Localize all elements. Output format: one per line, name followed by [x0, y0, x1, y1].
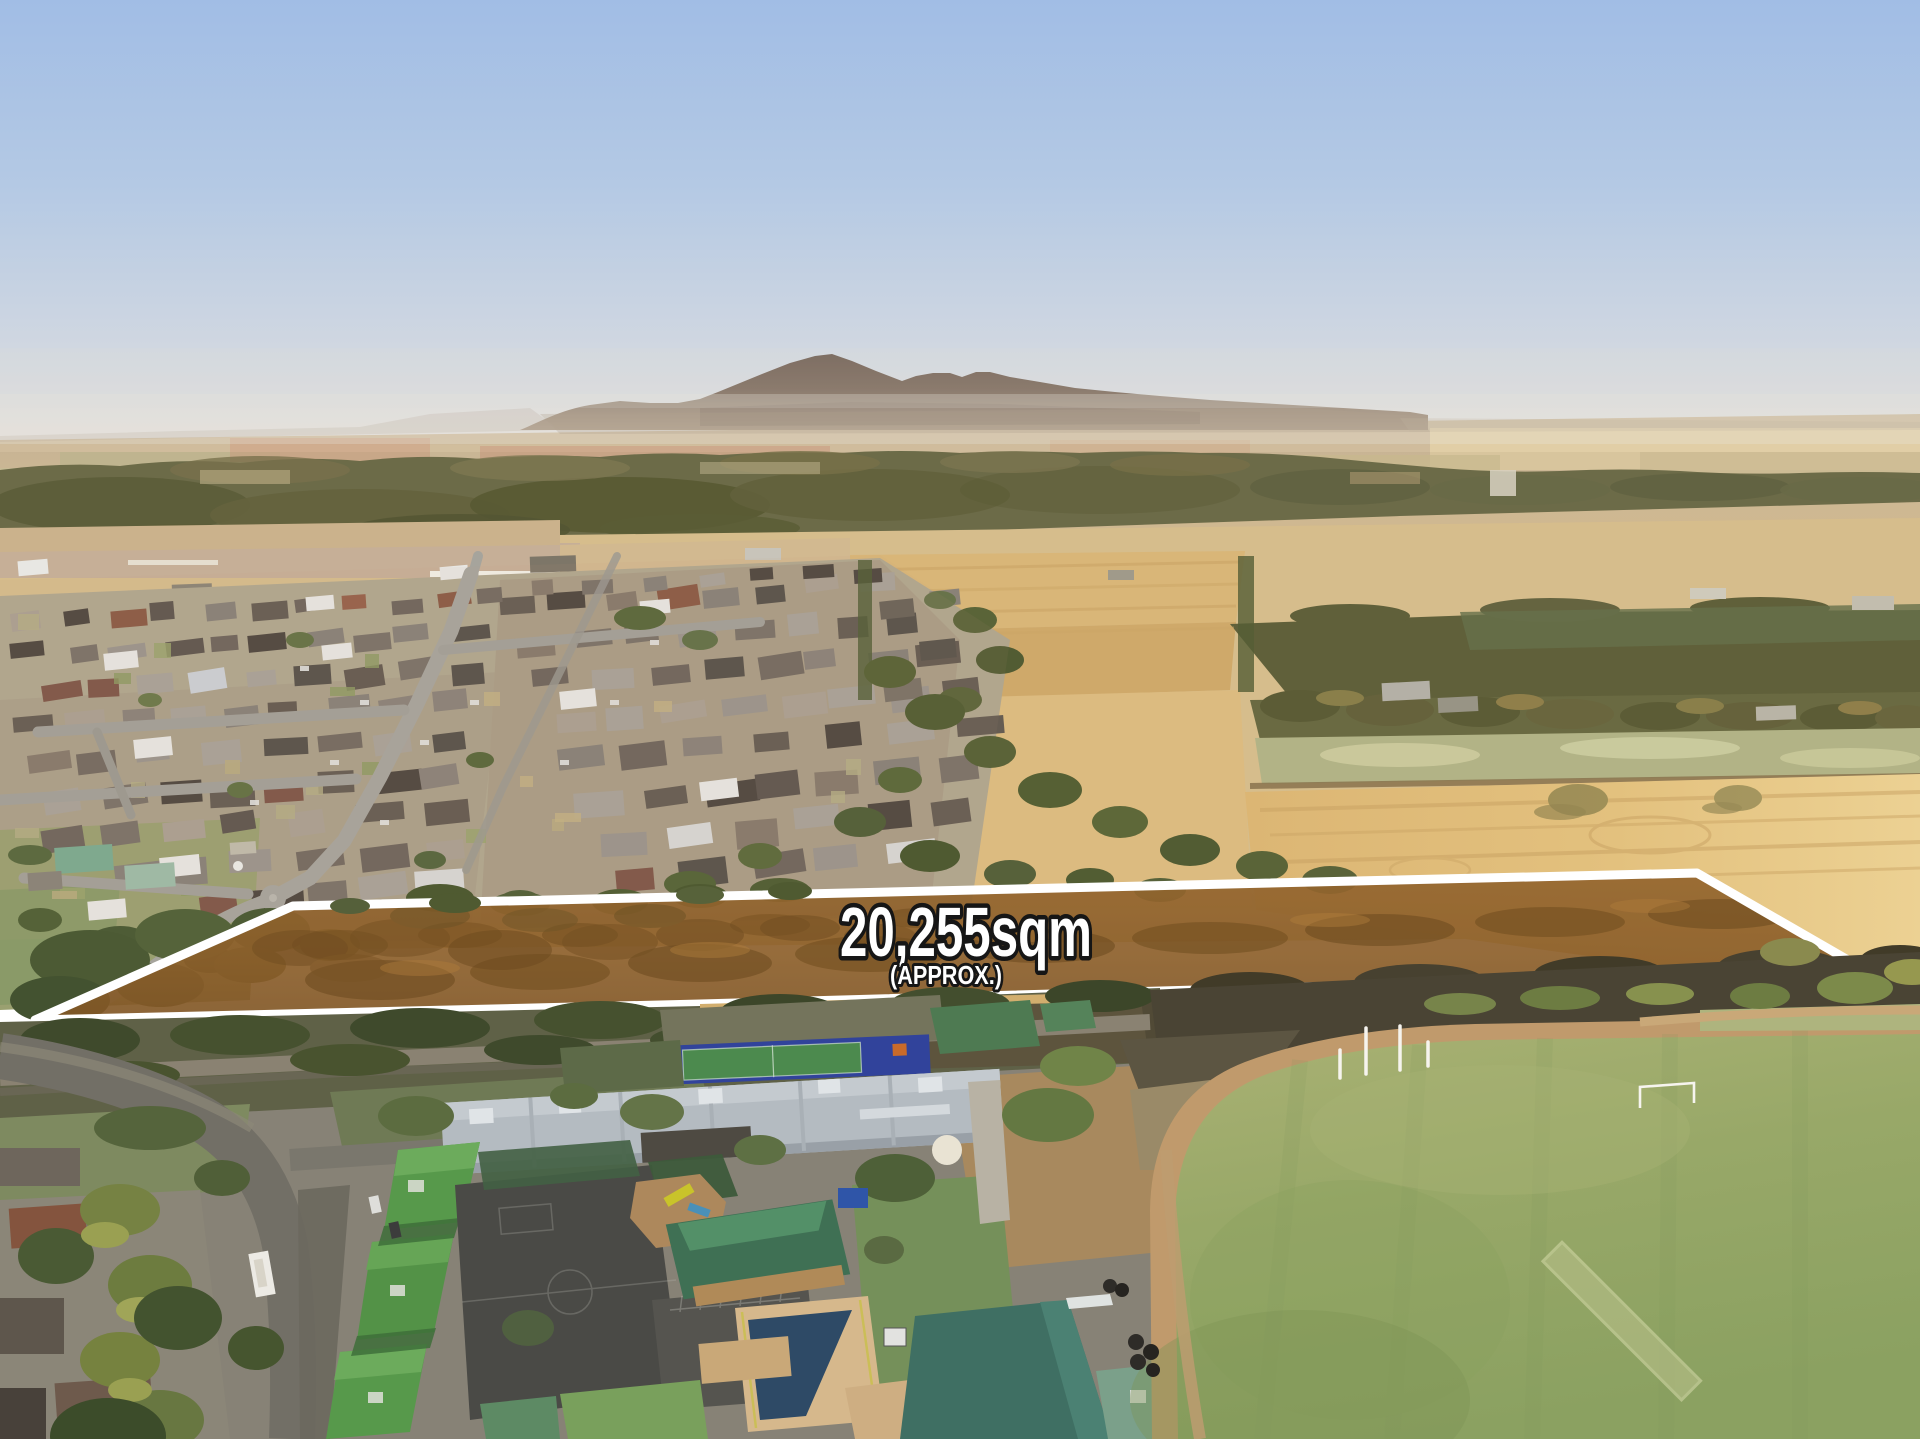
svg-text:(APPROX.): (APPROX.) — [890, 960, 1002, 990]
